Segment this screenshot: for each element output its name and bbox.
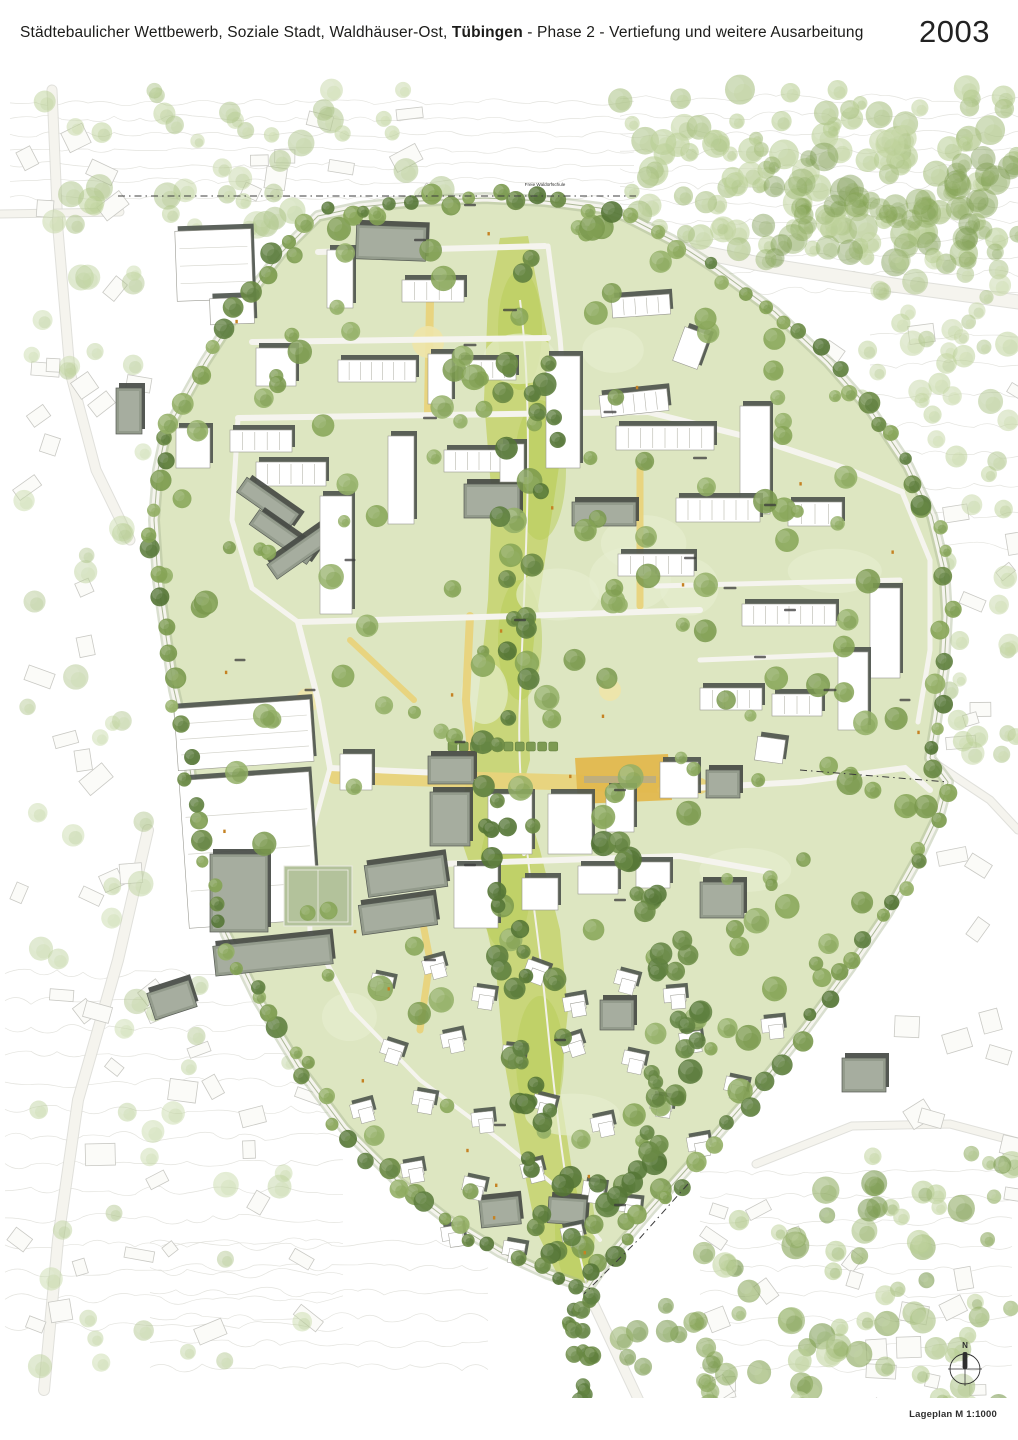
north-label: N (962, 1341, 968, 1350)
sheet-header: Städtebaulicher Wettbewerb, Soziale Stad… (0, 0, 1018, 62)
map-area: Freie Waldorfschule N Lageplan M 1:1000 (0, 62, 1018, 1440)
title-prefix: Städtebaulicher Wettbewerb, Soziale Stad… (20, 24, 452, 41)
competition-plan-sheet: Städtebaulicher Wettbewerb, Soziale Stad… (0, 0, 1018, 1440)
year-label: 2003 (919, 14, 990, 50)
bottom-margin (0, 1398, 1018, 1440)
title-emphasis: Tübingen (452, 24, 523, 41)
sheet-title: Städtebaulicher Wettbewerb, Soziale Stad… (20, 24, 863, 42)
title-suffix: - Phase 2 - Vertiefung und weitere Ausar… (523, 24, 864, 41)
school-label: Freie Waldorfschule (525, 182, 566, 187)
compass-needle (963, 1352, 968, 1369)
site-plan-map: Freie Waldorfschule N Lageplan M 1:1000 (0, 62, 1018, 1440)
map-scale-caption: Lageplan M 1:1000 (909, 1409, 997, 1420)
